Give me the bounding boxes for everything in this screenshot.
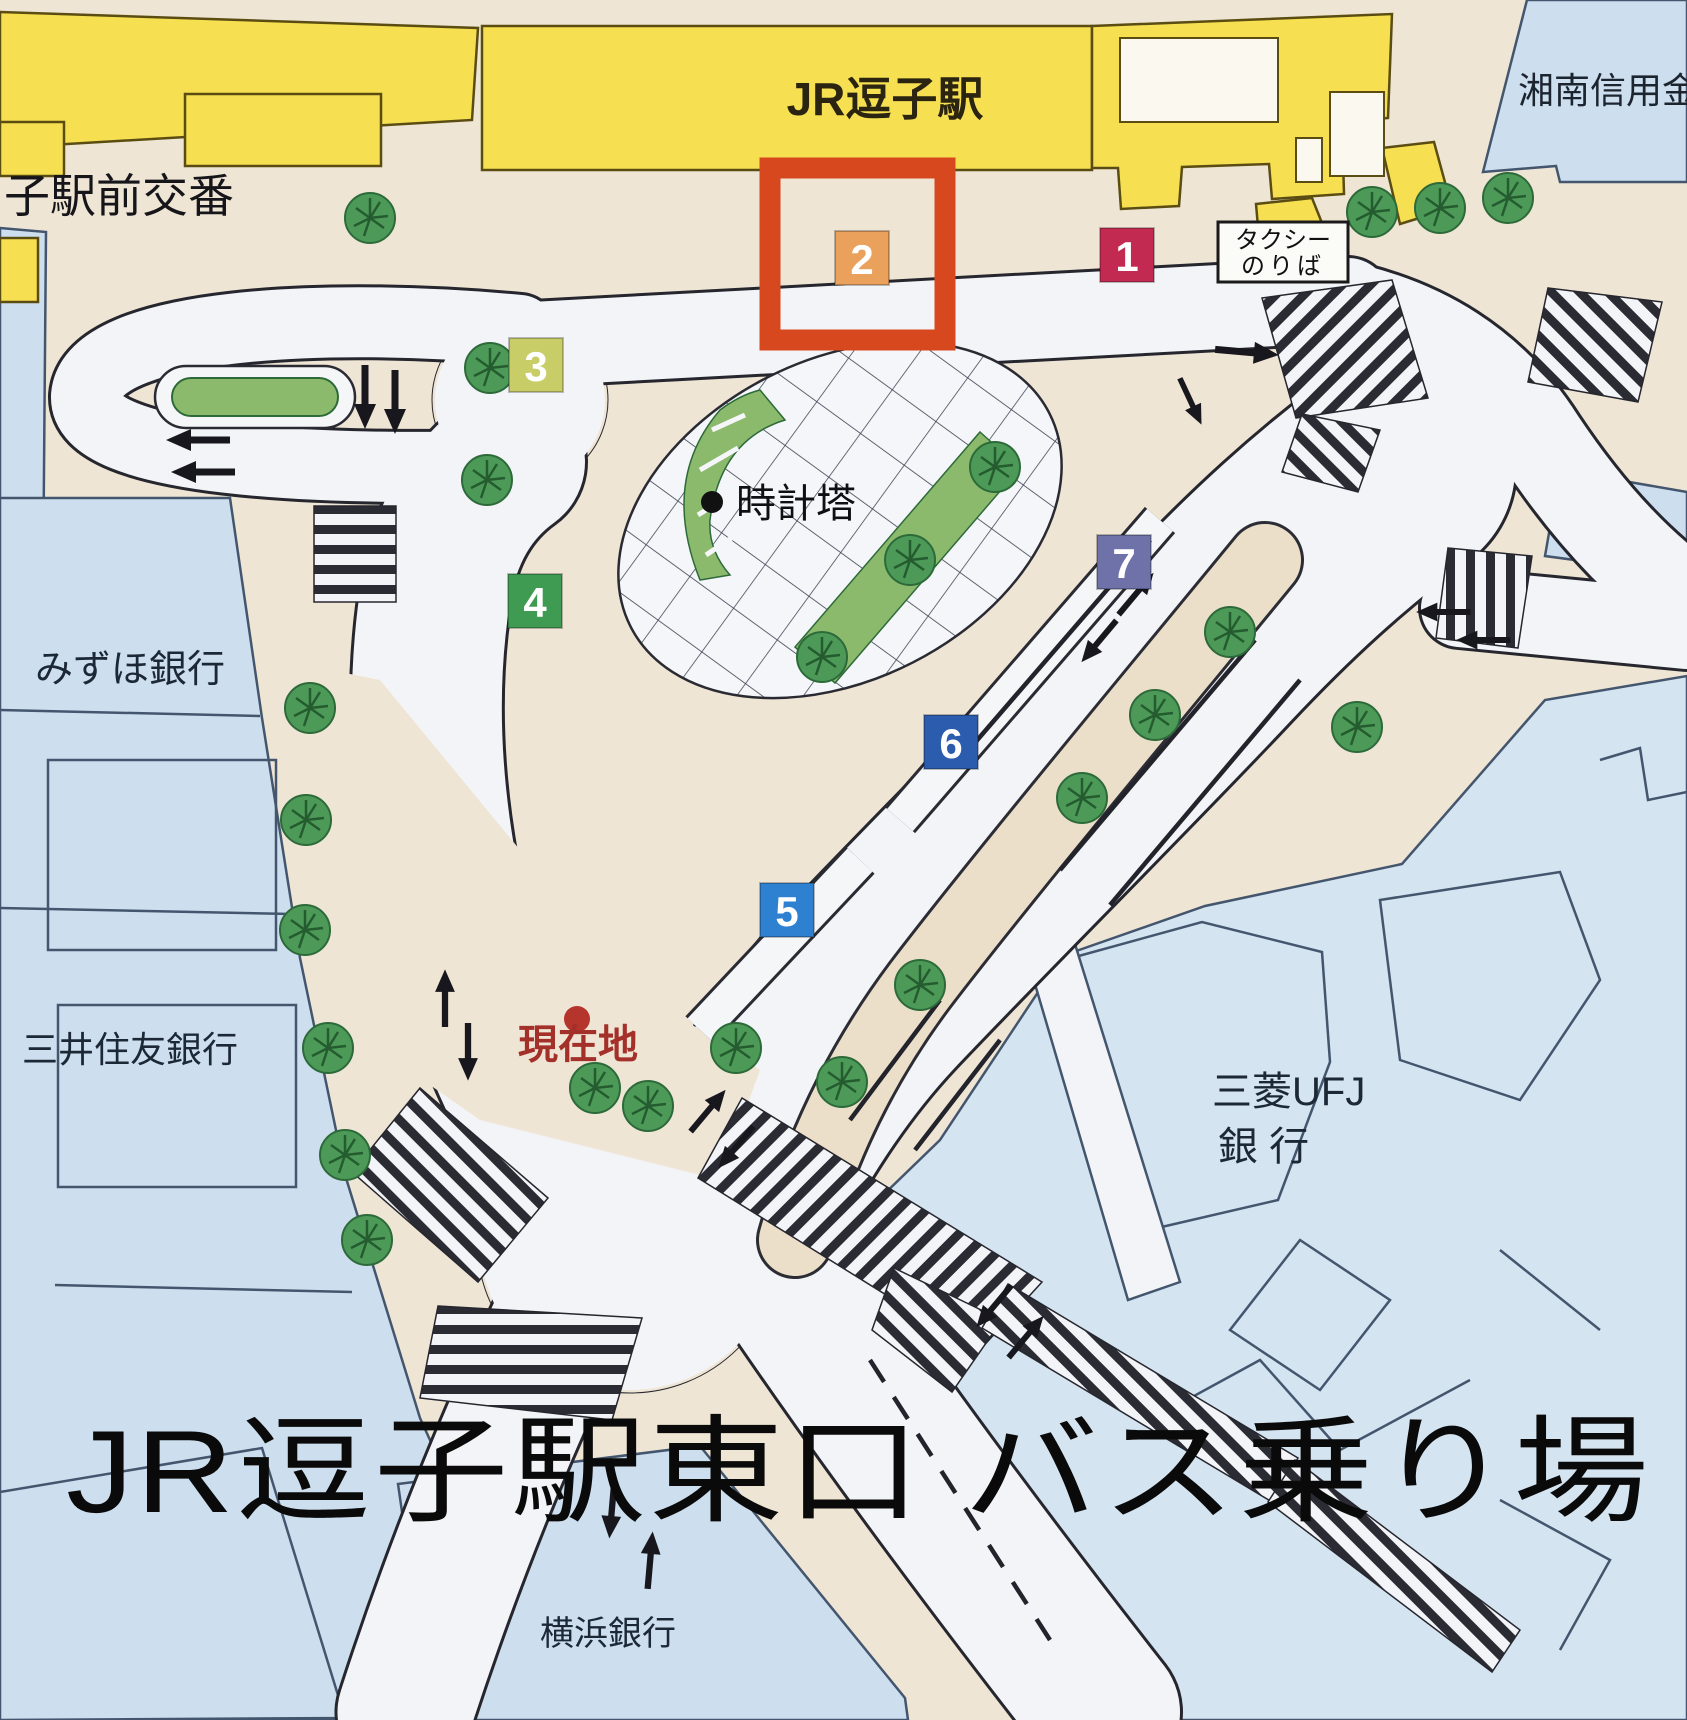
tree-icon bbox=[570, 1063, 620, 1113]
svg-text:6: 6 bbox=[939, 720, 962, 767]
svg-text:1: 1 bbox=[1115, 233, 1138, 280]
taxi-stand-line1: タクシー bbox=[1235, 227, 1331, 254]
svg-text:4: 4 bbox=[523, 579, 547, 626]
tree-icon bbox=[320, 1130, 370, 1180]
bus-stop-marker-7: 7 bbox=[1097, 535, 1151, 589]
taxi-stand-line2: のりば bbox=[1241, 253, 1325, 280]
tree-icon bbox=[1130, 690, 1180, 740]
tree-icon bbox=[1347, 187, 1397, 237]
clock-tower-dot bbox=[701, 491, 723, 513]
tree-icon bbox=[797, 632, 847, 682]
koban-building bbox=[0, 238, 38, 302]
tree-icon bbox=[1415, 183, 1465, 233]
police-box-label: 子駅前交番 bbox=[4, 170, 234, 222]
smbc-bank-label: 三井住友銀行 bbox=[22, 1029, 238, 1070]
svg-text:2: 2 bbox=[850, 236, 873, 283]
tree-icon bbox=[1205, 607, 1255, 657]
crosswalk bbox=[1528, 288, 1662, 402]
tree-icon bbox=[895, 960, 945, 1010]
station-map-photo: JR逗子駅 湘南信用金 子駅前交番 みずほ銀行 三井住友銀行 三菱UFJ 銀 行… bbox=[0, 0, 1687, 1720]
tree-icon bbox=[462, 455, 512, 505]
tree-icon bbox=[342, 1215, 392, 1265]
map-title-overlay: JR逗子駅東口 バス乗り場 bbox=[66, 1406, 1651, 1537]
mizuho-bank-label: みずほ銀行 bbox=[35, 649, 225, 691]
tree-icon bbox=[623, 1081, 673, 1131]
tree-icon bbox=[345, 193, 395, 243]
crosswalk bbox=[1436, 548, 1532, 648]
mufg-bank-label-line2: 銀 行 bbox=[1218, 1125, 1309, 1169]
bus-stop-marker-3: 3 bbox=[509, 338, 563, 392]
svg-text:5: 5 bbox=[775, 888, 798, 935]
svg-text:7: 7 bbox=[1112, 540, 1135, 587]
shinkin-bank-label: 湘南信用金 bbox=[1518, 70, 1687, 111]
bus-stop-marker-4: 4 bbox=[508, 574, 562, 628]
current-location-label: 現在地 bbox=[518, 1023, 638, 1067]
station-label: JR逗子駅 bbox=[787, 73, 984, 125]
tree-icon bbox=[465, 343, 515, 393]
bus-stop-marker-6: 6 bbox=[924, 715, 978, 769]
tree-icon bbox=[303, 1023, 353, 1073]
tree-icon bbox=[1483, 173, 1533, 223]
tree-icon bbox=[1057, 773, 1107, 823]
map-canvas: JR逗子駅 湘南信用金 子駅前交番 みずほ銀行 三井住友銀行 三菱UFJ 銀 行… bbox=[0, 0, 1687, 1720]
tree-icon bbox=[885, 535, 935, 585]
tree-icon bbox=[285, 683, 335, 733]
mufg-bank-label-line1: 三菱UFJ bbox=[1212, 1070, 1365, 1114]
bus-stop-marker-1: 1 bbox=[1100, 228, 1154, 282]
clock-tower-label: 時計塔 bbox=[736, 482, 856, 526]
tree-icon bbox=[711, 1023, 761, 1073]
bus-stop-marker-2: 2 bbox=[835, 231, 889, 285]
tree-icon bbox=[281, 795, 331, 845]
tree-icon bbox=[817, 1057, 867, 1107]
crosswalk bbox=[314, 506, 396, 602]
tree-icon bbox=[970, 442, 1020, 492]
taxi-stand-sign: タクシー のりば bbox=[1218, 222, 1348, 282]
yokohama-bank-label: 横浜銀行 bbox=[540, 1615, 676, 1653]
bus-stop-marker-5: 5 bbox=[760, 883, 814, 937]
green-island bbox=[172, 378, 338, 416]
tree-icon bbox=[280, 905, 330, 955]
svg-text:3: 3 bbox=[524, 343, 547, 390]
tree-icon bbox=[1332, 702, 1382, 752]
